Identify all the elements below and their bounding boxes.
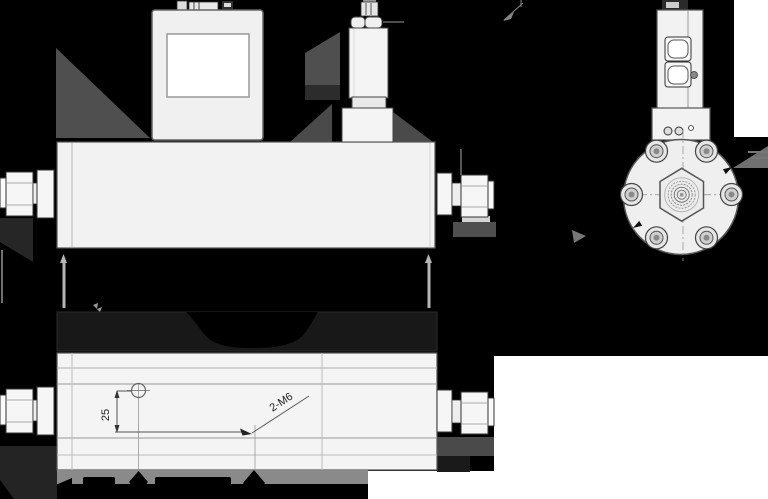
fitting-bore: [680, 193, 684, 197]
fitting-hex-nut: [461, 175, 488, 217]
shadow-wedge-left-of-valve-dark: [305, 85, 340, 100]
flange-bolt: [721, 184, 743, 206]
display-screen: [167, 34, 249, 97]
flange-bolt: [696, 140, 718, 162]
fitting-neck: [452, 183, 461, 206]
valve-neck: [352, 97, 386, 108]
fitting-neck: [33, 183, 37, 204]
display-top-connector: [189, 2, 218, 10]
fitting-hex-nut: [6, 389, 33, 433]
fitting-tube-stub: [488, 181, 494, 209]
flange-bolt: [646, 140, 668, 162]
paper-corner-top-right: [734, 0, 768, 137]
flange-bolt: [621, 184, 643, 206]
paper-corner-bottom-right: [494, 356, 768, 499]
base-bolt-2: [675, 127, 683, 135]
front-fitting-right-shadow: [453, 222, 496, 237]
fitting-hex-nut: [6, 172, 33, 216]
side-screw: [691, 72, 698, 79]
display-top-lug-left: [177, 1, 187, 10]
bottom-right-shadow: [436, 437, 494, 456]
side-connector: [652, 0, 710, 140]
bottom-fitting-left: [0, 387, 54, 435]
fitting-hex-nut: [461, 392, 488, 434]
base-bolt-1: [664, 127, 672, 135]
bottom-fitting-right: [437, 390, 494, 434]
connector-cap-inner: [666, 2, 679, 8]
bottom-left-shadow: [0, 446, 57, 499]
band-text-blob-1: [83, 477, 115, 490]
front-body: [57, 142, 435, 248]
fitting-neck: [33, 400, 37, 421]
fitting-flange-nut: [37, 387, 54, 435]
extension-bar-left: [63, 262, 66, 308]
fitting-neck: [452, 400, 461, 423]
bottom-body: [57, 353, 437, 470]
socket-lower-opening: [668, 66, 688, 84]
connector-base: [652, 108, 710, 140]
drawing-svg: 25 2-M6: [0, 0, 768, 499]
valve-collar-right: [365, 17, 382, 28]
bottom-right-shadow-dark: [437, 456, 470, 472]
dim-text-25: 25: [100, 409, 112, 421]
display-top-lug-right-inner: [224, 3, 231, 7]
fitting-flange-nut: [37, 170, 54, 218]
socket-upper-opening: [668, 40, 688, 58]
valve-base: [342, 108, 393, 142]
fitting-flange-nut: [437, 390, 452, 432]
technical-drawing-canvas: 25 2-M6: [0, 0, 768, 499]
valve-collar-left: [351, 17, 365, 28]
valve-top-nut: [361, 2, 378, 16]
top-view-band: [57, 312, 437, 351]
display-module: [152, 1, 263, 140]
base-pin: [689, 126, 694, 131]
extension-bar-right: [428, 262, 431, 308]
band-text-blob-2: [155, 477, 231, 492]
paper-strip-bottom: [368, 471, 498, 499]
valve-stem: [349, 28, 388, 98]
fitting-tube-stub: [488, 398, 494, 426]
flange-bolt: [646, 227, 668, 249]
fitting-flange-nut: [437, 173, 452, 215]
flange-bolt: [696, 227, 718, 249]
